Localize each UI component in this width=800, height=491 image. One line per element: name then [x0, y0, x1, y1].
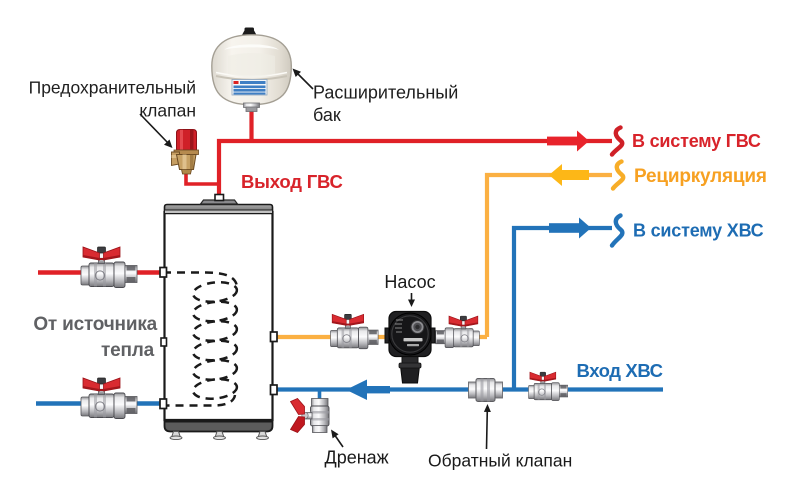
svg-text:Рециркуляция: Рециркуляция [634, 166, 767, 187]
svg-text:Предохранительный: Предохранительный [29, 78, 196, 98]
svg-text:тепла: тепла [101, 340, 155, 361]
svg-text:Выход ГВС: Выход ГВС [241, 171, 343, 192]
svg-text:клапан: клапан [139, 101, 196, 121]
svg-text:Обратный клапан: Обратный клапан [428, 451, 572, 471]
svg-text:Дренаж: Дренаж [325, 448, 389, 468]
svg-text:Насос: Насос [384, 272, 435, 292]
svg-text:бак: бак [313, 105, 341, 125]
svg-text:Расширительный: Расширительный [313, 83, 458, 103]
svg-text:Вход ХВС: Вход ХВС [577, 360, 663, 381]
svg-text:В систему ГВС: В систему ГВС [632, 131, 761, 151]
svg-text:В систему ХВС: В систему ХВС [633, 221, 764, 241]
svg-text:От источника: От источника [33, 314, 157, 335]
